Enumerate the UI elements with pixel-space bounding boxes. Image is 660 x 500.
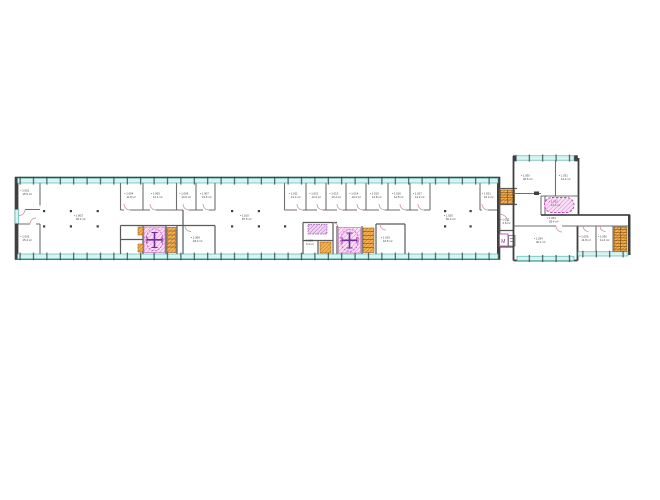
west-window-band (15, 210, 19, 224)
room-tag: ▪1.00411.8 m² (125, 192, 136, 199)
cad-canvas: M (0, 0, 660, 500)
room-tag: ▪1.00818.2 m² (191, 236, 203, 243)
room-tag: ▪1.01113.4 m² (289, 192, 301, 199)
room-tag: ▪1.03511.8 m² (580, 235, 591, 242)
main-wing (15, 177, 500, 260)
elevator-b-icon (339, 228, 361, 254)
elevator-a-icon (144, 227, 165, 253)
core-a (121, 210, 216, 254)
right-wing-south-glazing (578, 251, 628, 258)
room-tag: ▪1.03430.1 m² (534, 237, 546, 244)
connector-stair-icon (501, 190, 515, 204)
room-tag: ▪1.00115.9 m² (21, 189, 33, 196)
room-tag: ▪1.03611.4 m² (598, 235, 609, 242)
shaft-m-label: M (501, 239, 505, 245)
north-glazing-band (18, 177, 499, 185)
room-tag: ▪1.00215.4 m² (21, 235, 33, 242)
room-tag: ▪1.03114.2 m² (559, 174, 571, 181)
door-arcs (19, 204, 488, 232)
room-tag: ▪1.00512.1 m² (151, 192, 163, 199)
right-wing-stair-icon (614, 227, 627, 252)
wc-door-b (320, 242, 331, 253)
room-tag: ▪1.01313.4 m² (330, 192, 342, 199)
room-tag: ▪1.01916.8 m² (381, 236, 393, 243)
door-panel (534, 192, 539, 196)
room-tag: ▪1.02082.4 m² (444, 214, 456, 221)
south-glazing-band (18, 253, 499, 261)
right-wing-door-arcs (583, 226, 606, 232)
room-tag: ▪1.03028.6 m² (521, 174, 533, 181)
room-tag: ▪1.03328.4 m² (547, 216, 559, 223)
right-block-south-glazing (517, 255, 574, 262)
wc-door-a2 (138, 244, 143, 252)
room-tag: ▪1.00613.6 m² (180, 192, 192, 199)
room-tag: ▪1.01087.5 m² (240, 214, 252, 221)
shaft-side-marks (510, 239, 513, 242)
room-tag: ▪1.01614.8 m² (392, 192, 404, 199)
room-tag: ▪1.01213.4 m² (310, 192, 322, 199)
shaft-b-icon (363, 228, 374, 253)
room-tag: ▪1.0224.8 m² (501, 218, 511, 225)
right-block-north-glazing (513, 155, 578, 162)
column-grid (43, 210, 472, 228)
room-tag: ▪1.01413.4 m² (350, 192, 362, 199)
room-tag: ▪1.02110.2 m² (482, 192, 494, 199)
floor-plan-drawing: M (0, 0, 660, 500)
wc-door-a1 (138, 227, 143, 235)
room-tag: ▪1.00394.2 m² (74, 214, 86, 221)
room-tag: ▪1.0186.4 m² (304, 239, 314, 246)
room-tag: ▪1.01713.2 m² (413, 192, 425, 199)
main-wing-outline (16, 178, 500, 260)
room-tag: ▪1.01514.8 m² (370, 192, 382, 199)
south-mullions (18, 253, 499, 261)
north-mullions (18, 177, 499, 185)
right-end-wall (628, 215, 631, 255)
right-block-door-arc (556, 226, 562, 232)
pantry-unit-icon (308, 225, 327, 235)
room-tag: ▪1.00713.6 m² (200, 192, 212, 199)
right-block-inner-walls (514, 160, 631, 226)
shaft-a-icon (167, 228, 176, 253)
